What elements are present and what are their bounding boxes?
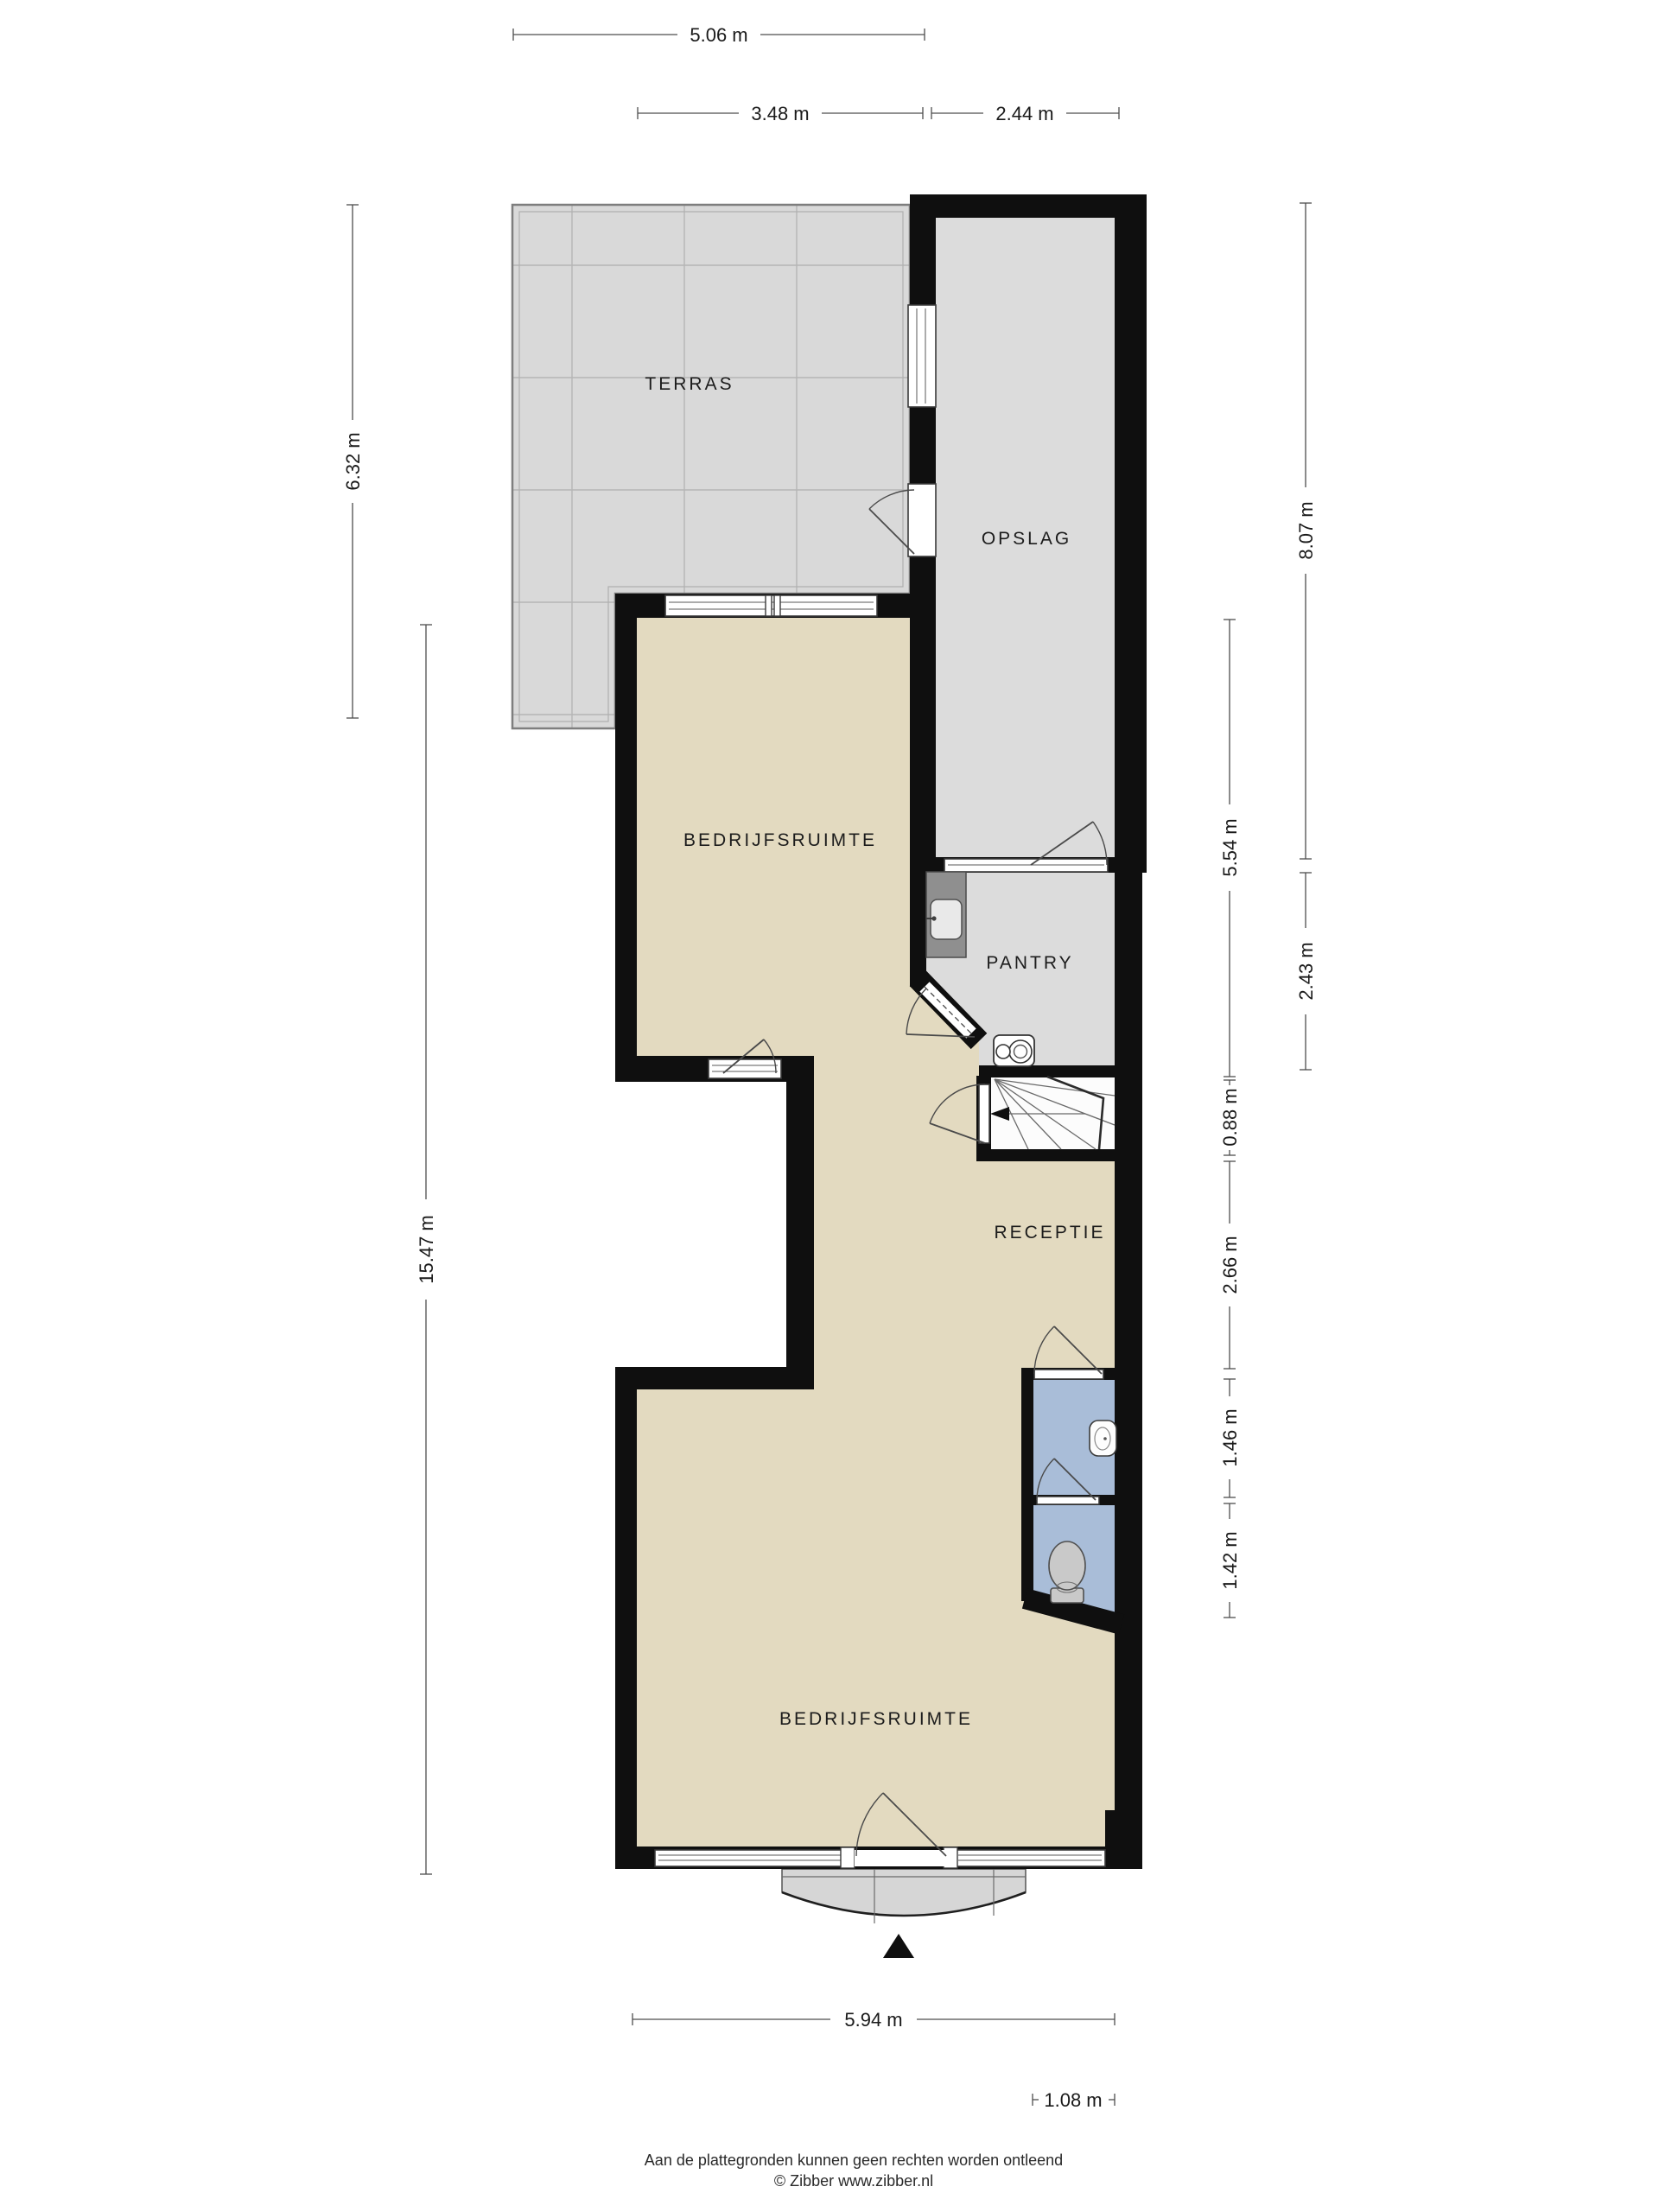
svg-text:5.06 m: 5.06 m	[690, 24, 747, 46]
dim-right-toilet-boven: 1.46 m	[1219, 1379, 1241, 1497]
svg-text:1.08 m: 1.08 m	[1044, 2089, 1102, 2111]
window	[709, 1059, 781, 1078]
footer-credit: © Zibber www.zibber.nl	[774, 2172, 933, 2190]
svg-text:8.07 m: 8.07 m	[1295, 501, 1317, 559]
room-label-bedrijfsruimte-beneden: BEDRIJFSRUIMTE	[779, 1709, 973, 1729]
footer: Aan de plattegronden kunnen geen rechten…	[645, 2152, 1063, 2190]
svg-text:3.48 m: 3.48 m	[751, 103, 809, 124]
dim-top-total: 5.06 m	[513, 24, 925, 46]
window	[655, 1850, 844, 1866]
washbasin-icon	[1090, 1421, 1116, 1456]
dim-left-total: 15.47 m	[416, 625, 437, 1874]
svg-text:5.94 m: 5.94 m	[844, 2009, 902, 2031]
dim-top-right: 2.44 m	[931, 103, 1119, 124]
room-label-pantry: PANTRY	[986, 953, 1073, 973]
dim-bottom-total: 5.94 m	[632, 2009, 1115, 2031]
dim-left-terras: 6.32 m	[342, 205, 364, 718]
window	[908, 305, 936, 407]
dim-right-opslag: 8.07 m	[1295, 203, 1317, 859]
svg-text:6.32 m: 6.32 m	[342, 432, 364, 490]
window	[665, 595, 877, 616]
toilet-icon	[1049, 1541, 1085, 1603]
entrance-canopy	[782, 1869, 1026, 1923]
svg-text:1.46 m: 1.46 m	[1219, 1408, 1241, 1466]
floor-plan-svg: TERRAS OPSLAG BEDRIJFSRUIMTE PANTRY RECE…	[0, 0, 1659, 2212]
dim-right-pantry: 2.43 m	[1295, 873, 1317, 1070]
svg-text:1.42 m: 1.42 m	[1219, 1531, 1241, 1589]
svg-text:5.54 m: 5.54 m	[1219, 818, 1241, 876]
dim-top-left: 3.48 m	[638, 103, 923, 124]
dim-right-werkruimte: 5.54 m	[1219, 620, 1241, 1077]
svg-text:0.88 m: 0.88 m	[1219, 1088, 1241, 1146]
room-label-bedrijfsruimte-boven: BEDRIJFSRUIMTE	[683, 830, 877, 850]
svg-text:2.43 m: 2.43 m	[1295, 942, 1317, 1000]
dim-right-toilet-onder: 1.42 m	[1219, 1503, 1241, 1618]
entrance-arrow-icon	[883, 1934, 914, 1958]
dim-bottom-entree: 1.08 m	[1033, 2089, 1115, 2111]
kitchen-counter	[926, 872, 966, 957]
svg-text:2.44 m: 2.44 m	[995, 103, 1053, 124]
door-jamb	[944, 1847, 957, 1868]
footer-disclaimer: Aan de plattegronden kunnen geen rechten…	[645, 2152, 1063, 2169]
dim-right-receptie: 2.66 m	[1219, 1161, 1241, 1369]
floor-plan-page: TERRAS OPSLAG BEDRIJFSRUIMTE PANTRY RECE…	[0, 0, 1659, 2212]
window	[955, 1850, 1105, 1866]
svg-text:2.66 m: 2.66 m	[1219, 1236, 1241, 1294]
window	[944, 859, 1108, 872]
door-jamb	[841, 1847, 855, 1868]
boiler-icon	[994, 1035, 1034, 1066]
room-label-receptie: RECEPTIE	[994, 1223, 1105, 1243]
room-label-opslag: OPSLAG	[982, 529, 1071, 549]
dim-right-trap: 0.88 m	[1219, 1080, 1241, 1155]
svg-text:15.47 m: 15.47 m	[416, 1215, 437, 1284]
room-label-terras: TERRAS	[645, 374, 734, 394]
